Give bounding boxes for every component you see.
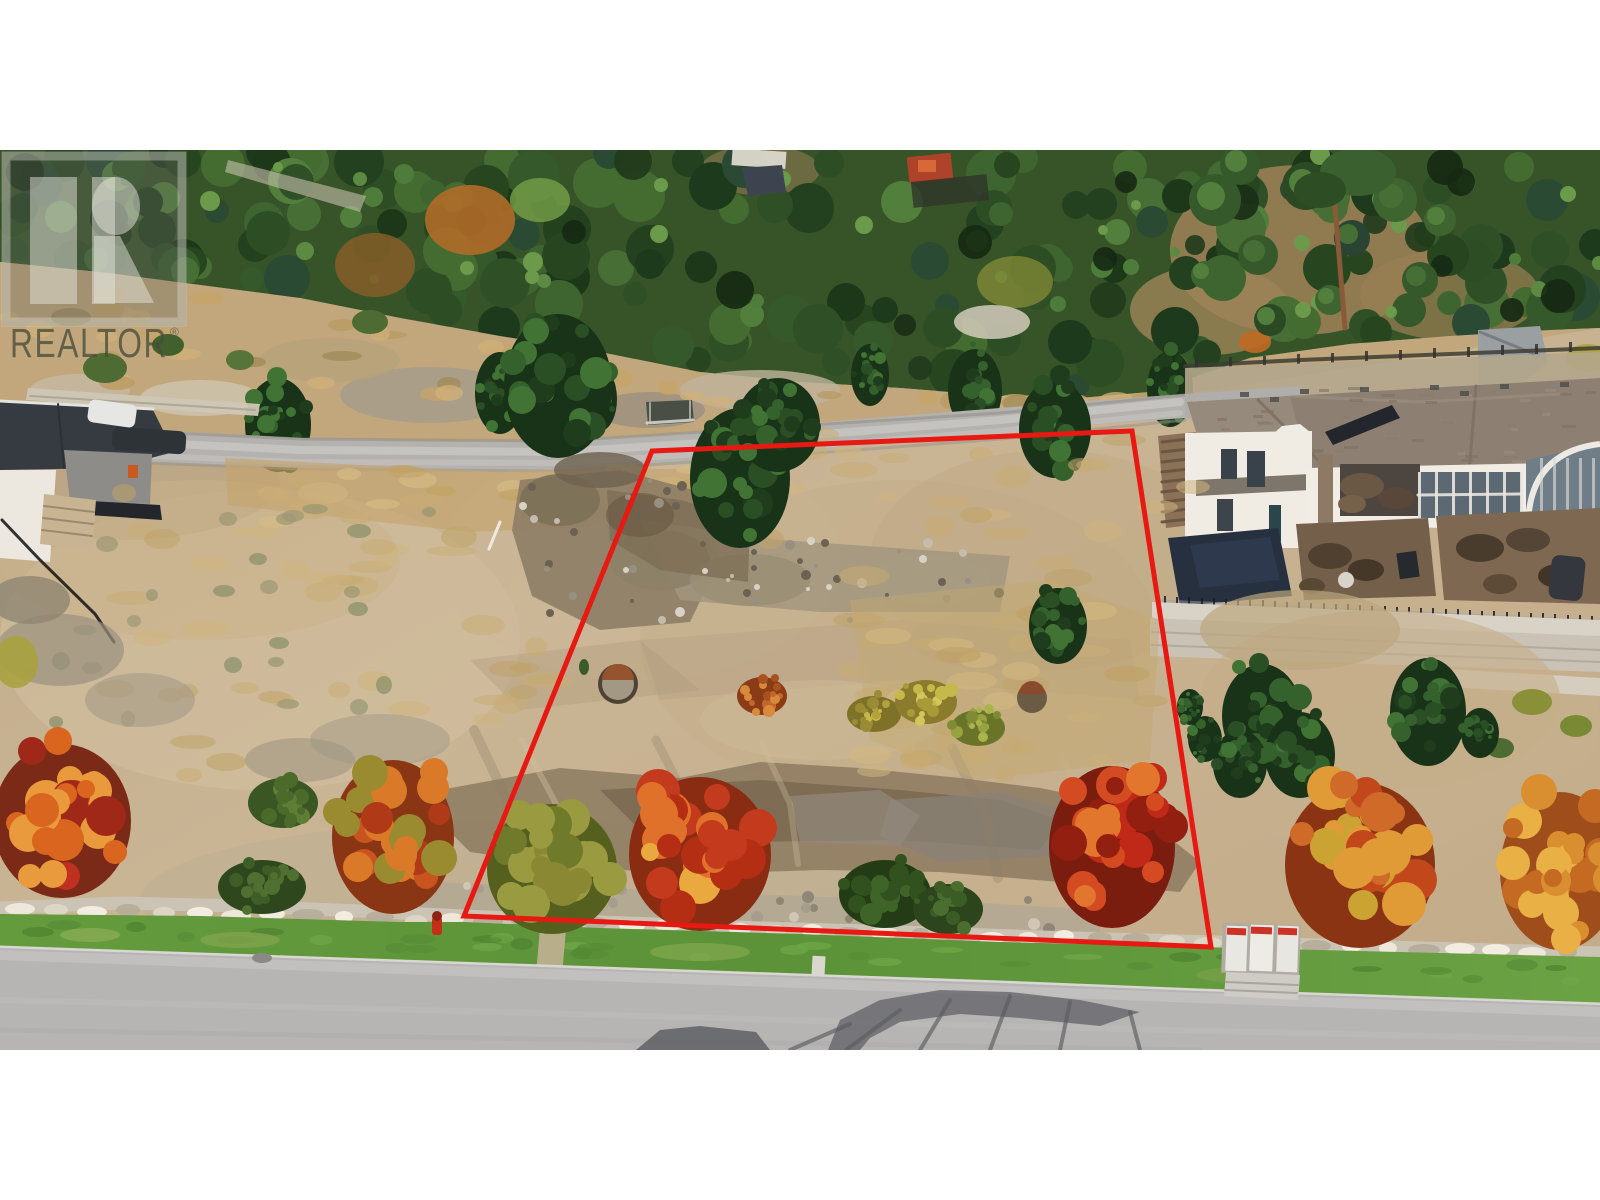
svg-text:®: ® xyxy=(170,325,179,339)
svg-text:REALTOR: REALTOR xyxy=(10,320,168,366)
